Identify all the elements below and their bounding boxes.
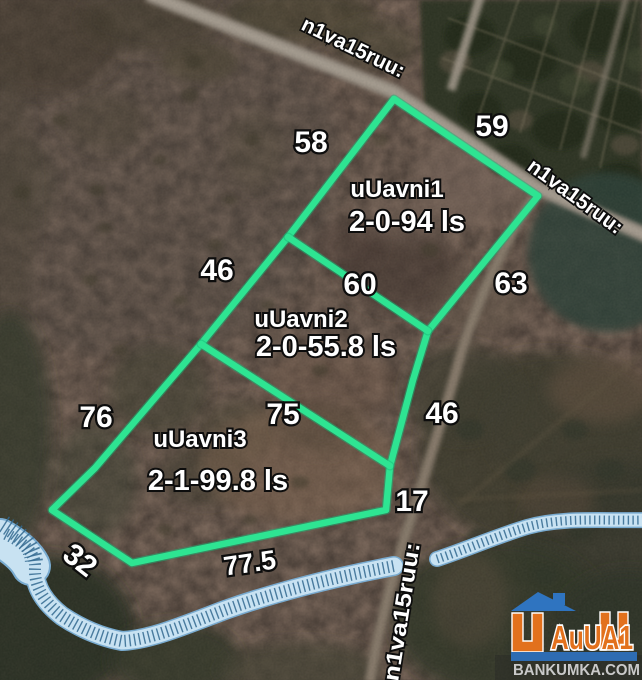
svg-text:AuUA1: AuUA1 (551, 619, 633, 656)
svg-text:2-1-99.8 ls: 2-1-99.8 ls (148, 465, 288, 497)
svg-text:58: 58 (294, 126, 327, 159)
svg-text:76: 76 (79, 401, 112, 434)
svg-text:59: 59 (475, 110, 508, 143)
svg-text:63: 63 (494, 267, 527, 300)
svg-text:46: 46 (425, 397, 458, 430)
svg-text:uUavni3: uUavni3 (153, 426, 246, 453)
svg-text:2-0-94 ls: 2-0-94 ls (349, 206, 465, 238)
svg-text:BANKUMKA.COM: BANKUMKA.COM (513, 662, 640, 679)
svg-text:60: 60 (343, 268, 376, 301)
svg-text:17: 17 (395, 485, 428, 518)
svg-text:uUavni2: uUavni2 (254, 306, 347, 333)
svg-text:46: 46 (200, 254, 233, 287)
svg-text:uUavni1: uUavni1 (350, 176, 443, 203)
svg-text:75: 75 (266, 398, 299, 431)
svg-text:2-0-55.8 ls: 2-0-55.8 ls (256, 331, 396, 363)
